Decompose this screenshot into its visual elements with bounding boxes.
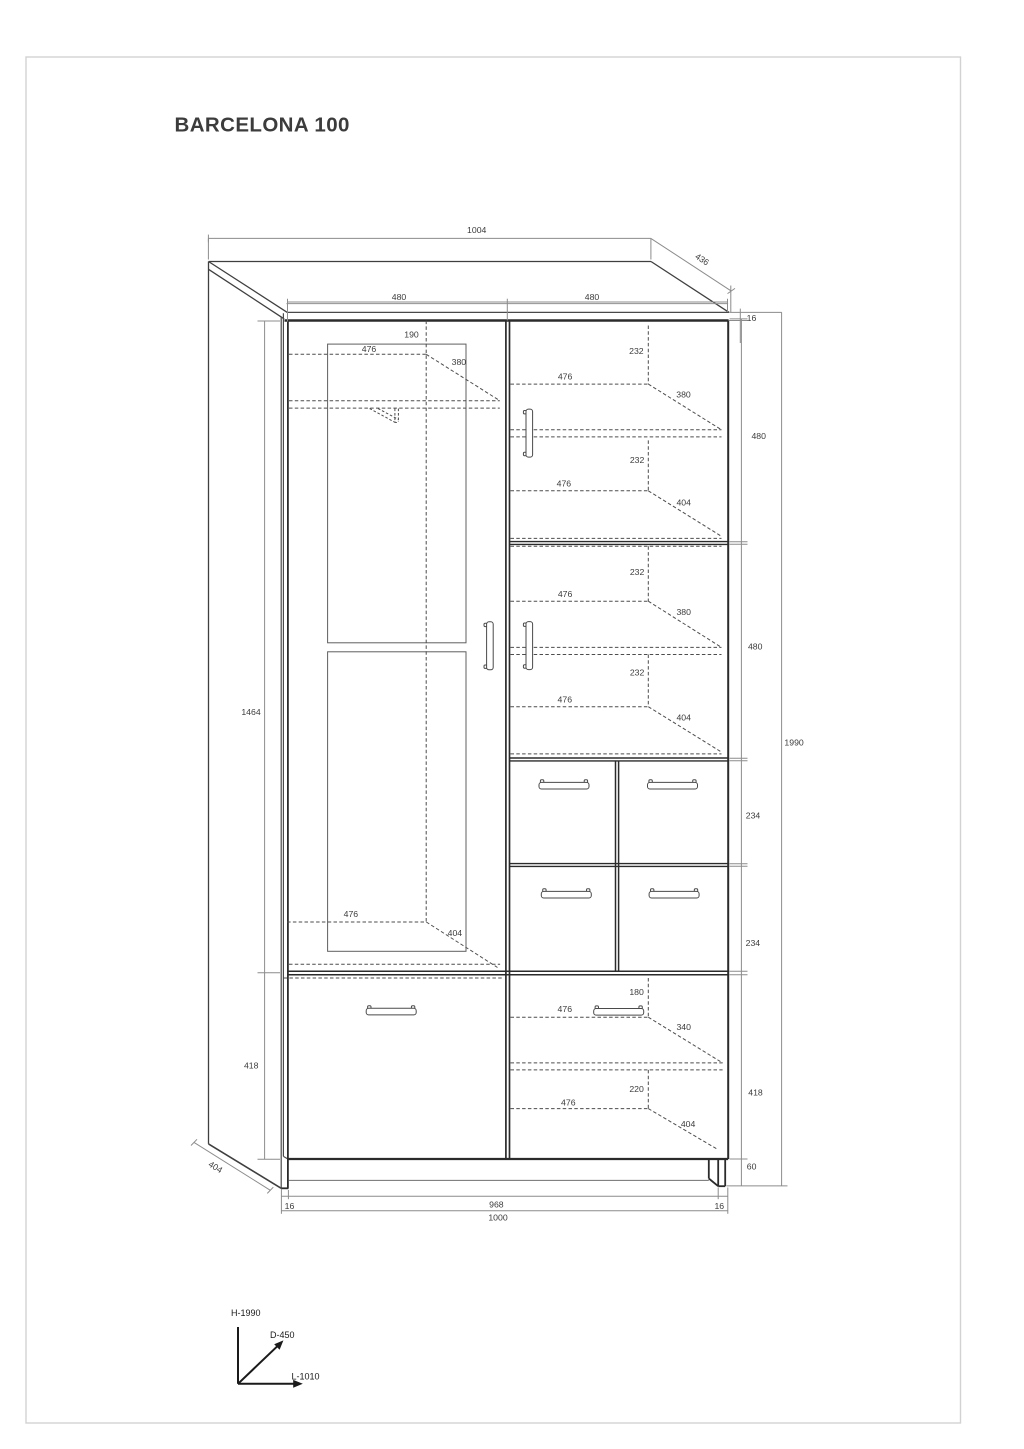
svg-text:16: 16 [714,1201,724,1211]
svg-text:232: 232 [630,567,645,577]
svg-text:16: 16 [285,1201,295,1211]
svg-text:418: 418 [244,1061,259,1071]
svg-text:968: 968 [489,1200,504,1210]
svg-text:480: 480 [392,292,407,302]
svg-text:476: 476 [558,589,573,599]
svg-text:476: 476 [561,1097,576,1107]
svg-text:D-450: D-450 [270,1330,295,1340]
svg-text:404: 404 [681,1119,696,1129]
svg-text:480: 480 [748,641,763,651]
svg-text:234: 234 [746,811,761,821]
svg-text:H-1990: H-1990 [231,1308,261,1318]
svg-text:1464: 1464 [241,707,260,717]
svg-text:16: 16 [747,313,757,323]
svg-text:1004: 1004 [467,225,486,235]
svg-text:404: 404 [448,928,463,938]
svg-text:476: 476 [558,371,573,381]
svg-text:476: 476 [558,694,573,704]
svg-text:476: 476 [362,344,377,354]
svg-text:180: 180 [629,987,644,997]
svg-text:404: 404 [676,497,691,507]
svg-text:L-1010: L-1010 [292,1372,320,1382]
svg-text:234: 234 [746,938,761,948]
svg-text:232: 232 [630,455,645,465]
svg-text:340: 340 [676,1022,691,1032]
svg-text:232: 232 [629,346,644,356]
svg-text:404: 404 [676,713,691,723]
svg-text:380: 380 [676,607,691,617]
svg-text:220: 220 [629,1084,644,1094]
svg-text:476: 476 [557,478,572,488]
svg-text:476: 476 [558,1004,573,1014]
svg-text:476: 476 [344,909,359,919]
svg-text:232: 232 [630,668,645,678]
svg-text:60: 60 [747,1161,757,1171]
svg-text:190: 190 [404,330,419,340]
svg-text:380: 380 [452,357,467,367]
svg-text:BARCELONA 100: BARCELONA 100 [175,113,350,136]
svg-text:480: 480 [585,292,600,302]
svg-text:418: 418 [748,1087,763,1097]
svg-text:1990: 1990 [784,738,803,748]
svg-text:480: 480 [751,431,766,441]
svg-text:1000: 1000 [488,1213,507,1223]
svg-text:380: 380 [676,389,691,399]
